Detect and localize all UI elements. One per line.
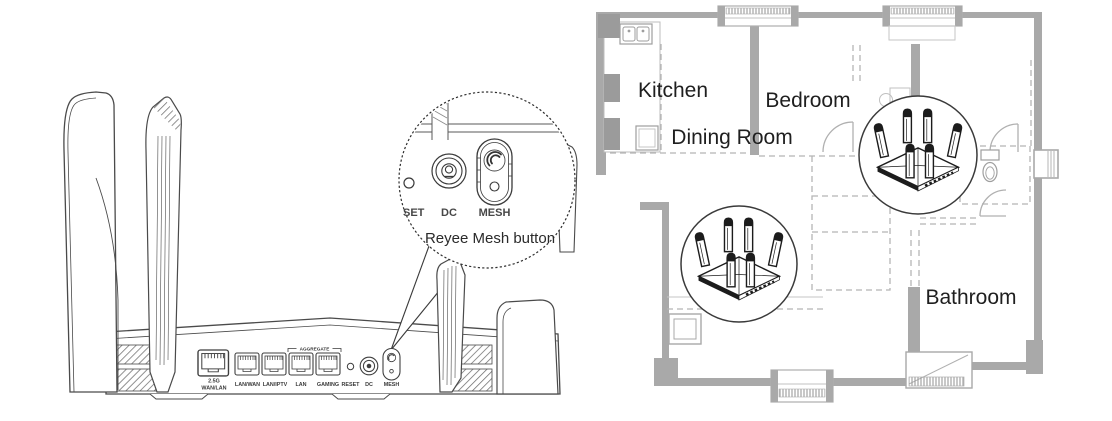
antenna-left-outer <box>64 92 118 392</box>
port3-label: LAN/IPTV <box>263 382 288 388</box>
stove-icon <box>636 126 658 150</box>
port-gaming-icon <box>316 353 340 375</box>
door-arc-bedroom <box>823 122 853 152</box>
mesh-button-icon <box>383 349 400 381</box>
magnified-dc-jack-icon <box>432 154 466 188</box>
mesh-label: MESH <box>384 382 400 388</box>
antenna-right-outer <box>497 300 558 394</box>
reset-hole-icon <box>347 363 353 369</box>
aggregate-label: AGGREGATE <box>300 347 330 352</box>
port2-label: LAN/WAN <box>235 382 260 388</box>
shower-icon <box>906 352 972 388</box>
magnified-mesh-button-icon <box>477 139 512 205</box>
port1-label-line1: 2.5G <box>208 379 220 385</box>
window-top-left <box>718 6 798 26</box>
mesh-router-marker-2 <box>681 206 797 322</box>
mesh-router-marker-1 <box>859 96 977 214</box>
toilet-icon <box>981 150 999 182</box>
port1-label-line2: WAN/LAN <box>201 386 226 392</box>
window-bottom <box>771 370 833 402</box>
room-label-bedroom: Bedroom <box>765 89 850 112</box>
dc-label: DC <box>365 382 373 388</box>
antenna-left-inner <box>146 97 181 392</box>
magnified-dc-label: DC <box>441 207 457 219</box>
router-rear-illustration: AGGREGATE 2.5G WAN/LAN LAN/WAN LAN/IPTV … <box>0 0 600 421</box>
port4-label: LAN <box>295 382 306 388</box>
magnified-reset-label: SET <box>403 207 425 219</box>
door-arc-toilet-room <box>990 124 1018 152</box>
room-label-bathroom: Bathroom <box>925 286 1016 309</box>
reset-label: RESET <box>342 382 361 388</box>
magnifier-circle: SET DC MESH Reyee Mesh button <box>399 90 576 268</box>
door-arc-bathroom <box>980 190 1006 216</box>
port-wan-icon <box>198 350 228 376</box>
plan-walls <box>596 12 1043 386</box>
floorplan: Kitchen Bedroom Dining Room Bathroom <box>590 0 1112 421</box>
dc-jack-icon <box>360 357 378 375</box>
washing-machine-icon <box>669 314 701 344</box>
callout-caption: Reyee Mesh button <box>425 230 555 247</box>
port-laniptv-icon <box>262 353 286 375</box>
room-label-kitchen: Kitchen <box>638 79 708 102</box>
port-lanwan-icon <box>235 353 259 375</box>
antenna-right-inner <box>437 258 465 393</box>
manual-illustration: AGGREGATE 2.5G WAN/LAN LAN/WAN LAN/IPTV … <box>0 0 1112 421</box>
room-label-dining: Dining Room <box>671 126 792 149</box>
magnified-reset-hole-icon <box>404 178 414 188</box>
magnified-mesh-label: MESH <box>479 207 511 219</box>
magnified-antenna-edge <box>432 90 448 140</box>
port5-label: GAMING <box>317 382 339 388</box>
port-lan-icon <box>289 353 313 375</box>
sink-icon <box>620 24 652 44</box>
window-top-right <box>883 6 962 40</box>
window-right <box>1034 150 1058 178</box>
